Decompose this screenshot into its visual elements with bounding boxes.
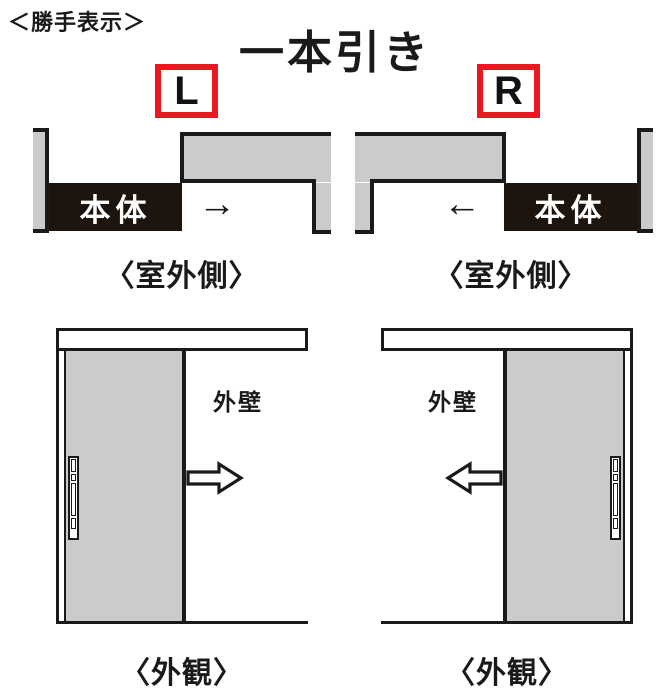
- handle-lock-segment: [613, 474, 618, 481]
- elevation-right-bottom-line: [381, 621, 633, 624]
- handle-segment: [71, 518, 76, 529]
- plan-right-jamb-bottom-line: [637, 229, 653, 233]
- plan-left-return-edge-line: [312, 179, 316, 234]
- elevation-right-outer-edge: [630, 328, 633, 624]
- handle-grip-segment: [613, 483, 618, 516]
- plan-right-return-bottom-line: [355, 230, 374, 234]
- block-arrow-right-icon: [186, 461, 244, 495]
- handle-segment: [613, 518, 618, 529]
- diagram-page: ＜勝手表示＞ 一本引き L R 本体 → 〈室外側〉 本体 ← 〈室外側〉: [0, 0, 670, 692]
- handing-badge-left: L: [155, 64, 218, 118]
- handing-badge-right: R: [477, 64, 540, 118]
- plan-left-wall-top-line: [180, 132, 331, 136]
- plan-left-jamb-bottom-line: [33, 229, 49, 233]
- plan-left-caption: 〈室外側〉: [84, 251, 280, 295]
- page-title: 一本引き: [0, 16, 670, 81]
- plan-left-door-body-label: 本体: [80, 185, 152, 230]
- plan-right-wall-right-line: [502, 132, 506, 183]
- plan-right-jamb: [640, 131, 653, 231]
- plan-right-wall-block: [355, 136, 503, 182]
- plan-left-wall-block: [183, 136, 331, 182]
- plan-left-slide-arrow-icon: →: [198, 192, 236, 216]
- plan-left-wall-left-line: [180, 132, 184, 183]
- elevation-right-head-rail: [381, 328, 633, 351]
- plan-right-wall-return: [355, 183, 371, 231]
- handle-segment: [71, 459, 76, 472]
- handle-lock-segment: [71, 474, 76, 481]
- elevation-left-caption: 〈外観〉: [84, 648, 280, 692]
- plan-left-wall-return: [315, 183, 331, 231]
- plan-right-jamb-edge-line: [637, 128, 641, 233]
- elevation-left-outer-edge: [56, 328, 59, 624]
- block-arrow-left-icon: [445, 461, 503, 495]
- plan-right-slide-arrow-icon: ←: [443, 192, 481, 216]
- handing-letter-right: R: [494, 71, 523, 111]
- elevation-left-bottom-line: [56, 621, 308, 624]
- plan-right-wall-top-line: [355, 132, 506, 136]
- plan-left-door-body: 本体: [49, 183, 182, 231]
- plan-right-door-body-label: 本体: [535, 185, 607, 230]
- elevation-right-door-panel: [503, 351, 625, 622]
- elevation-left-head-rail: [56, 328, 308, 351]
- handing-letter-left: L: [174, 71, 198, 111]
- handle-segment: [613, 459, 618, 472]
- elevation-left-door-panel: [64, 351, 186, 622]
- plan-right-caption: 〈室外側〉: [413, 251, 609, 295]
- plan-right-wall-bottom-line: [370, 179, 506, 183]
- plan-right-door-body: 本体: [504, 183, 637, 231]
- elevation-right-wall-label: 外壁: [403, 383, 503, 417]
- elevation-left-handle: [68, 456, 79, 540]
- handle-grip-segment: [71, 483, 76, 516]
- plan-right-return-edge-line: [370, 179, 374, 234]
- plan-left-return-bottom-line: [312, 230, 331, 234]
- elevation-right-caption: 〈外観〉: [409, 648, 605, 692]
- elevation-left-wall-label: 外壁: [188, 383, 288, 417]
- elevation-right-handle: [610, 456, 621, 540]
